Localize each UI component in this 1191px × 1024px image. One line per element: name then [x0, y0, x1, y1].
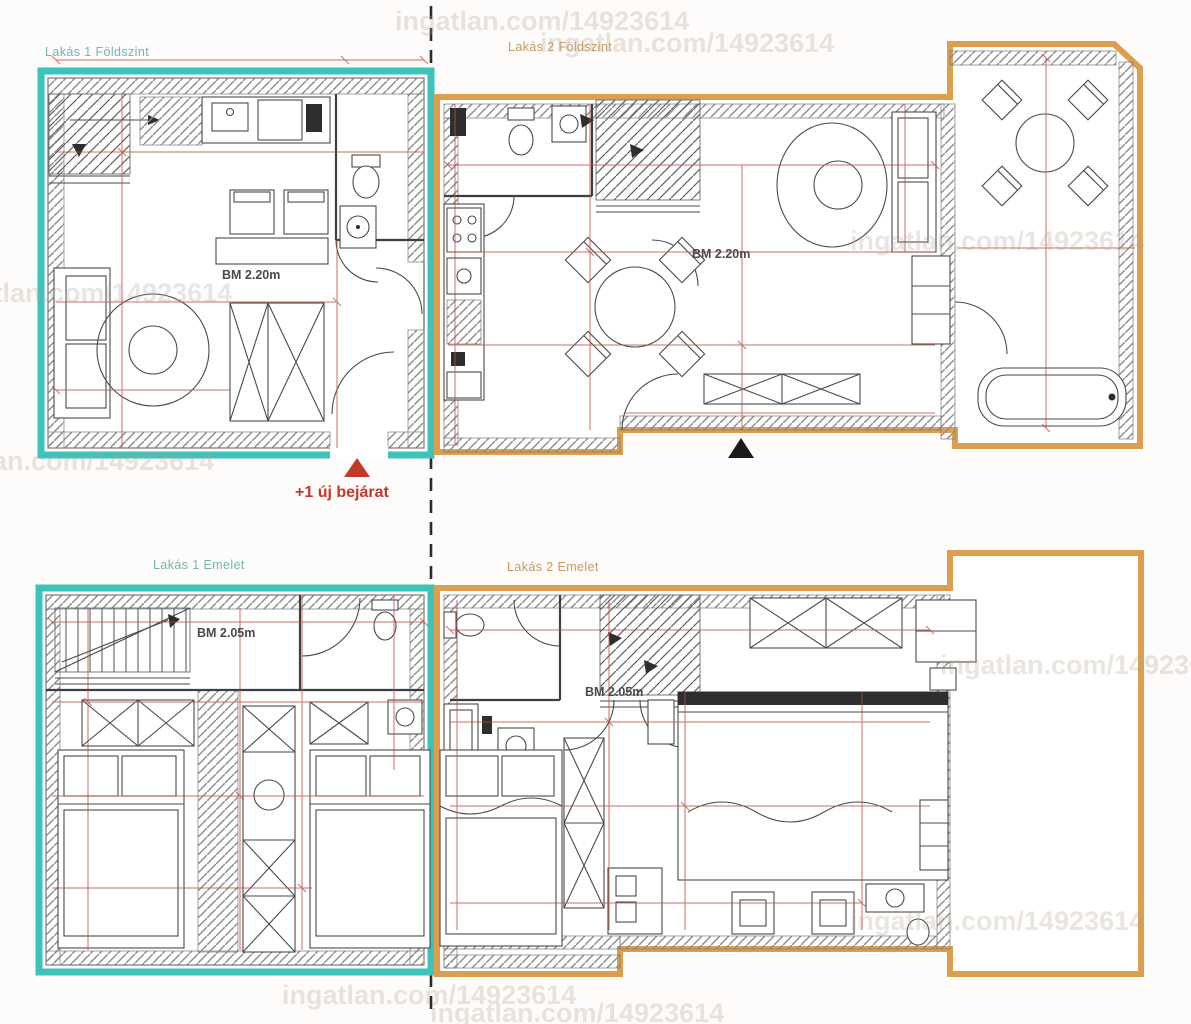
unit3-title-label: Lakás 1 Emelet: [153, 558, 245, 572]
wardrobe-icon: [82, 700, 194, 746]
unit1-kitchen: [140, 97, 330, 145]
new-entrance-label: +1 új bejárat: [295, 484, 389, 501]
cabinet-icon: [310, 702, 368, 744]
toilet-icon: [508, 108, 534, 120]
watermark-text: ingatlan.com/14923614: [0, 278, 232, 308]
watermark-text: ingatlan.com/14923614: [540, 28, 834, 58]
toilet-icon: [444, 612, 456, 638]
unit1-title-label: Lakás 1 Földszint: [45, 45, 149, 59]
bed-icon: [310, 750, 430, 948]
radiator-icon: [920, 800, 948, 870]
floor-plan-svg: BM 2.20m: [0, 0, 1191, 1024]
unit-lakas-1-emelet: BM 2.05m: [39, 588, 431, 972]
unit4-bm-label: BM 2.05m: [585, 685, 643, 699]
washbasin-icon: [552, 106, 586, 142]
unit2-sideboard: [704, 374, 860, 404]
armchair-icon: [812, 892, 854, 934]
unit-lakas-1-foldszint: BM 2.20m: [41, 56, 431, 460]
unit3-closet-column: [243, 706, 295, 952]
dining-table-icon: [595, 267, 675, 347]
closet-column-icon: [564, 738, 604, 908]
unit2-entrance-marker: [728, 438, 754, 458]
new-entrance-marker: [344, 458, 370, 477]
round-table-icon: [1016, 114, 1074, 172]
watermark-text: ingatlan.com/14923614: [0, 446, 214, 476]
unit2-bm-label: BM 2.20m: [692, 247, 750, 261]
watermark-text: ingatlan.com/14923614: [940, 650, 1191, 680]
cabinet-icon: [912, 256, 950, 344]
new-entrance-annotation: +1 új bejárat: [295, 458, 389, 501]
watermark-text: ingatlan.com/14923614: [850, 226, 1144, 256]
bed-icon: [678, 692, 948, 880]
unit4-title-label: Lakás 2 Emelet: [507, 560, 599, 574]
bathtub-icon: [978, 368, 1126, 426]
watermark-text: ingatlan.com/14923614: [850, 906, 1144, 936]
unit2-kitchen: [444, 204, 484, 400]
armchair-icon: [230, 190, 274, 234]
unit1-entrance-gap: [330, 446, 388, 460]
desk-icon: [608, 868, 662, 934]
shower-icon: [388, 700, 422, 734]
armchair-icon: [284, 190, 328, 234]
armchair-icon: [732, 892, 774, 934]
toilet-icon: [352, 155, 380, 167]
coffee-table-icon: [216, 238, 328, 264]
unit3-bm-label: BM 2.05m: [197, 626, 255, 640]
watermark-text: ingatlan.com/14923614: [430, 998, 724, 1024]
floorplan-canvas: BM 2.20m: [0, 0, 1191, 1024]
bed-icon: [440, 750, 562, 946]
bed-icon: [58, 750, 184, 948]
wardrobe-icon: [230, 303, 324, 421]
